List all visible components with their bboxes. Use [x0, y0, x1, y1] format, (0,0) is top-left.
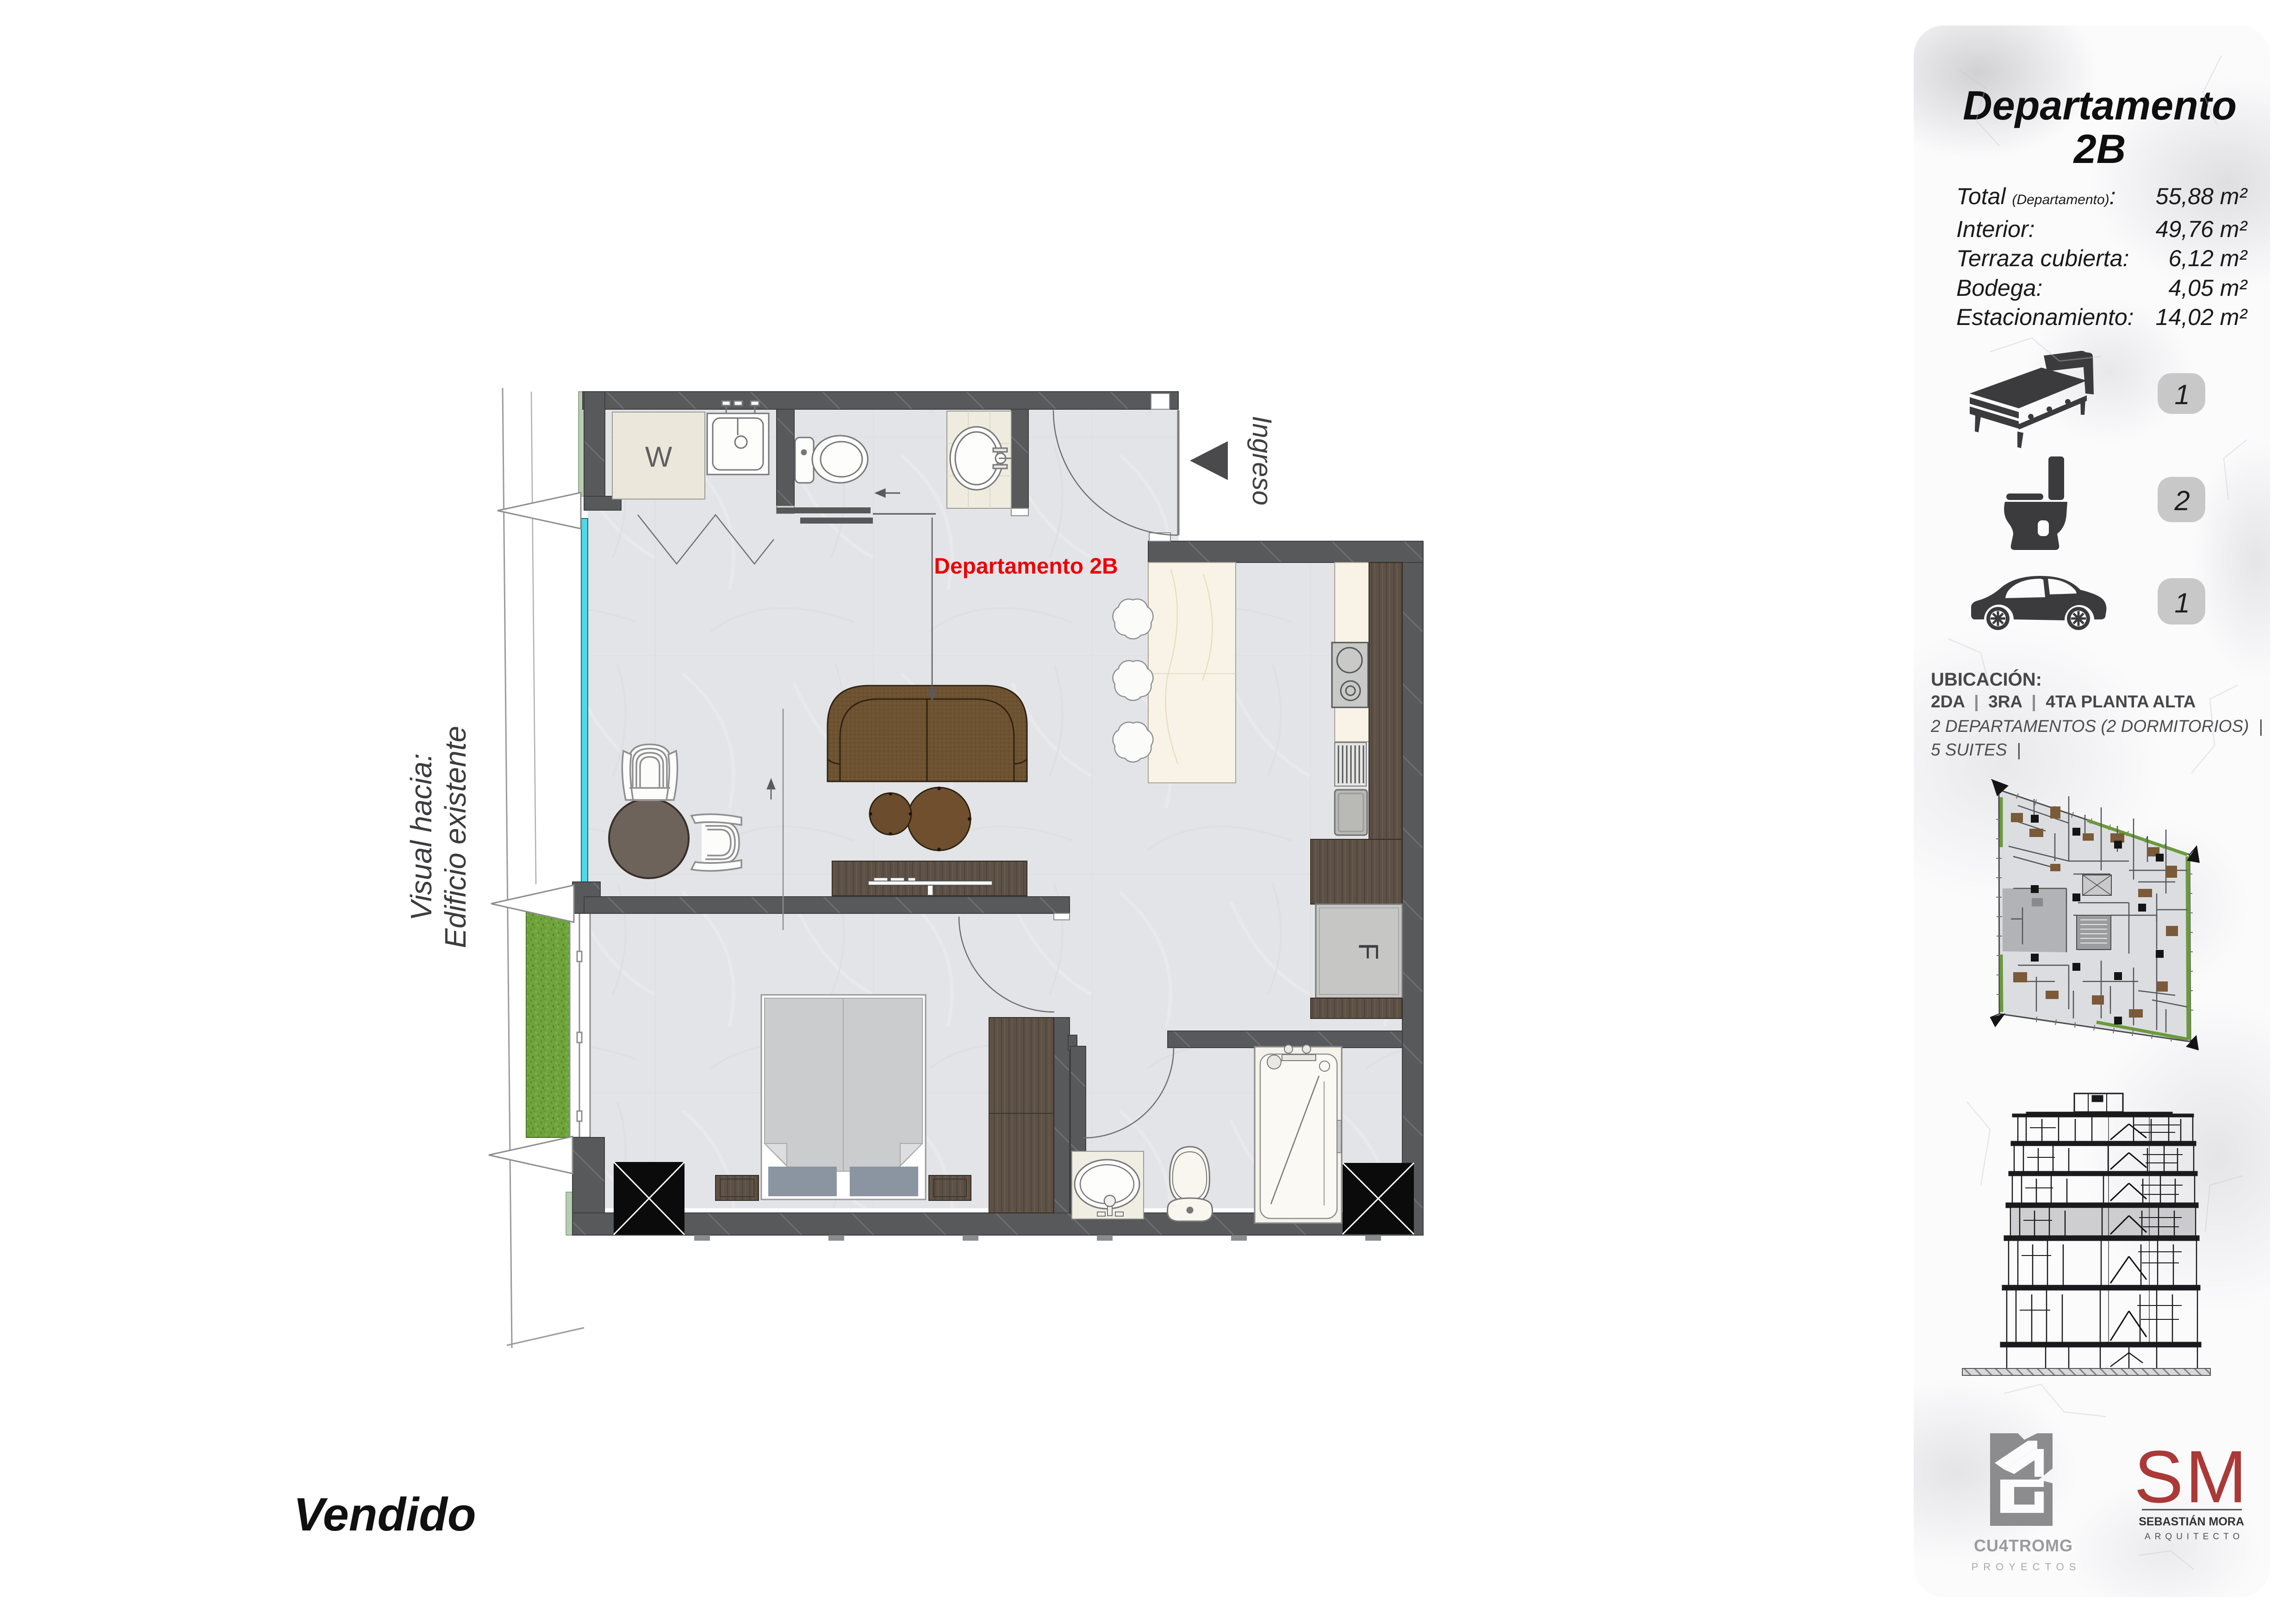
svg-text:CU4TROMG: CU4TROMG	[1974, 1536, 2073, 1555]
svg-text:SEBASTIÁN MORA: SEBASTIÁN MORA	[2139, 1515, 2244, 1528]
svg-text:SM: SM	[2134, 1435, 2249, 1518]
svg-text:ARQUITECTO: ARQUITECTO	[2145, 1532, 2244, 1542]
svg-text:PROYECTOS: PROYECTOS	[1972, 1561, 2081, 1573]
